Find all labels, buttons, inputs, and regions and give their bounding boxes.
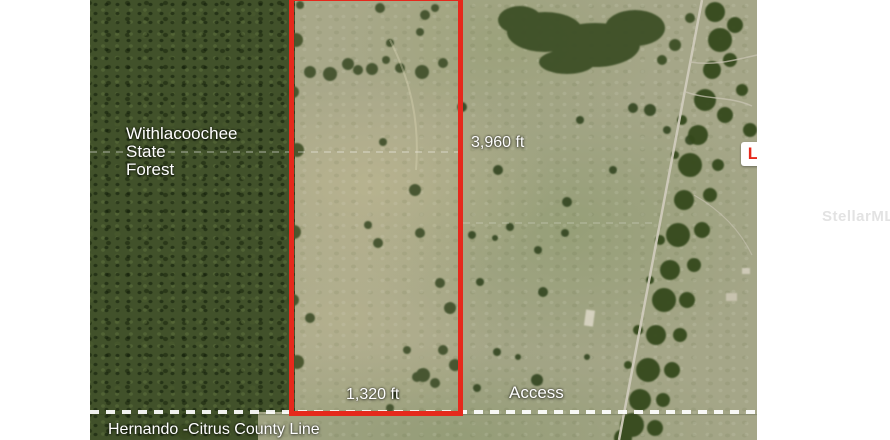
access-label: Access	[509, 383, 564, 403]
horizontal-dimension-label: 1,320 ft	[346, 386, 399, 404]
listing-marker: L	[741, 142, 757, 166]
vertical-dimension-label: 3,960 ft	[471, 134, 524, 152]
property-outline	[289, 0, 463, 416]
state-forest-label: Withlacoochee State Forest	[126, 125, 238, 179]
satellite-map: Withlacoochee State Forest 3,960 ft 1,32…	[90, 0, 757, 440]
county-line-label: Hernando -Citrus County Line	[108, 421, 320, 439]
tree-cluster-north	[498, 6, 695, 74]
mls-watermark: StellarMLS	[822, 208, 890, 225]
listing-photo: Withlacoochee State Forest 3,960 ft 1,32…	[0, 0, 890, 440]
forest-edge-trees	[143, 33, 304, 440]
fence-line	[463, 222, 653, 224]
road-tree-band	[614, 2, 757, 440]
listing-marker-label: L	[748, 144, 757, 164]
